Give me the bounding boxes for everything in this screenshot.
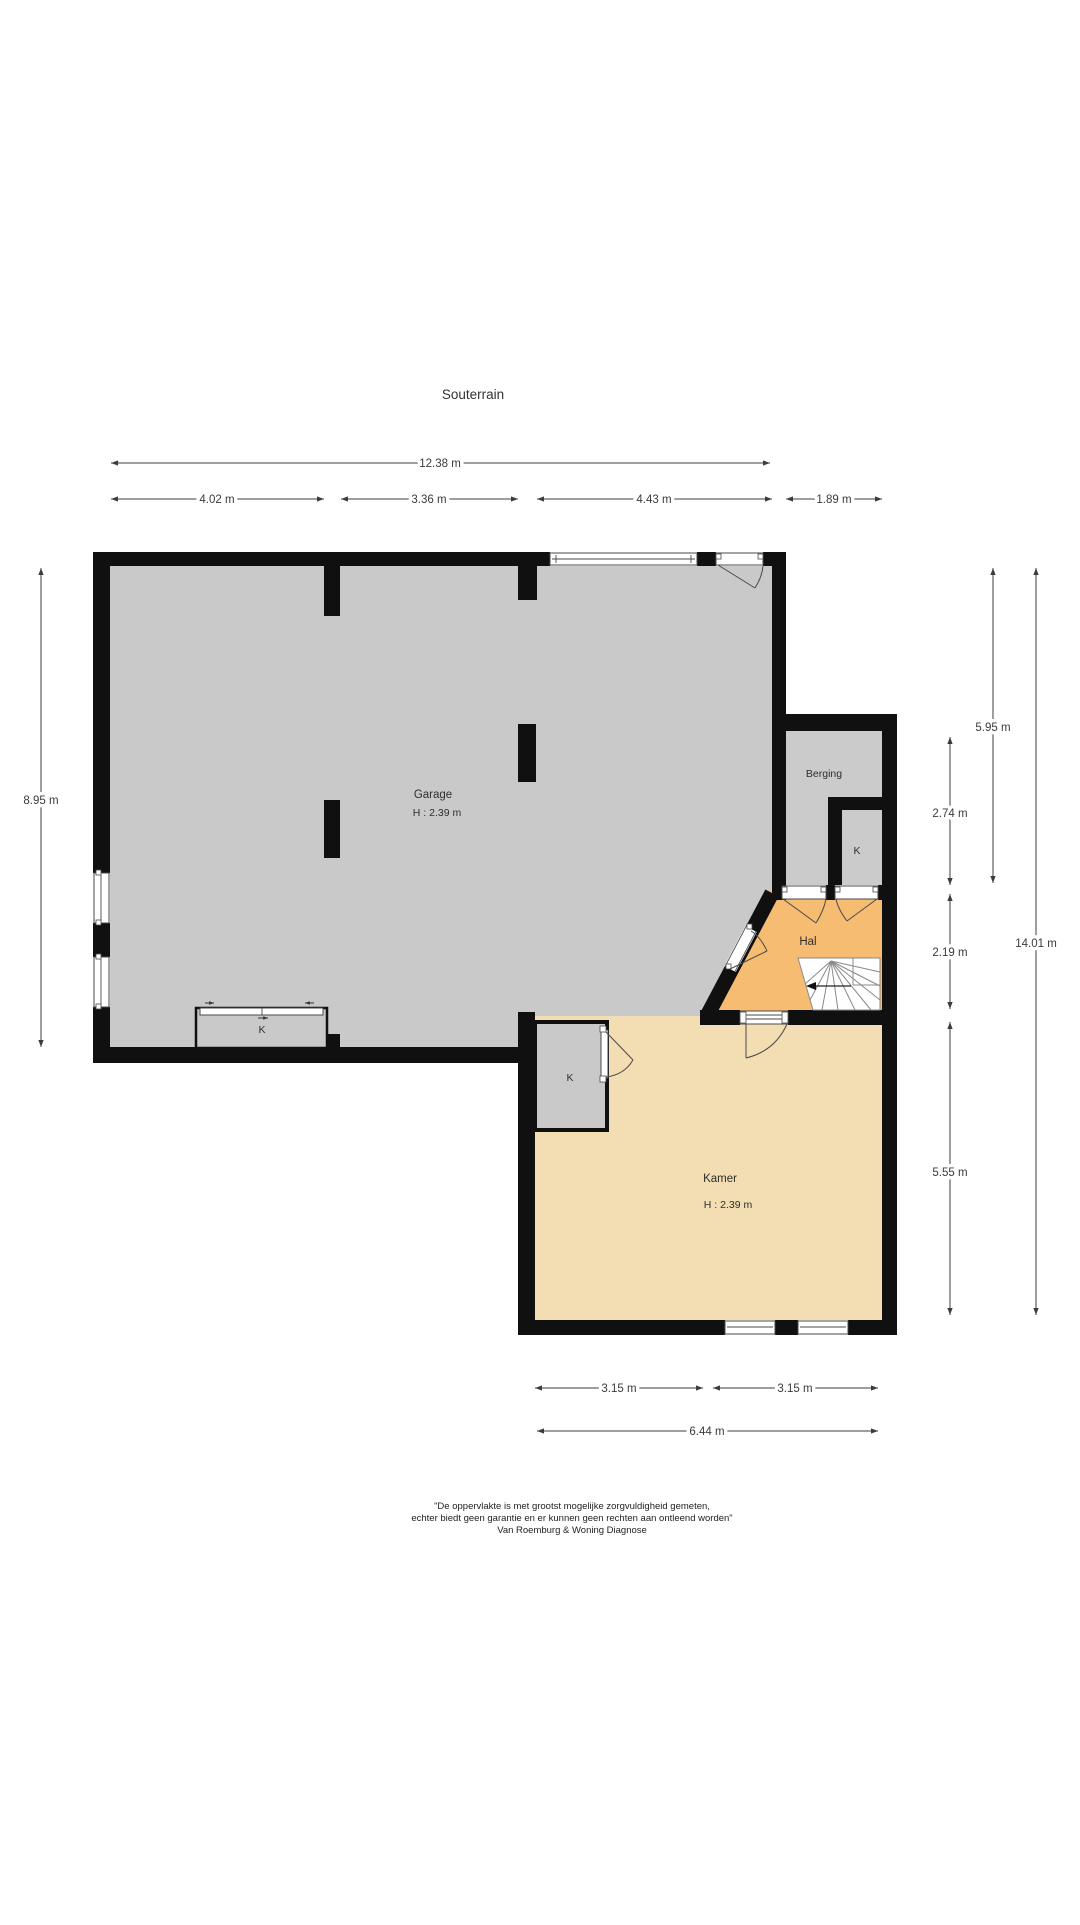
berging-closet-label: K [853, 845, 860, 857]
hinge-icon [600, 1026, 606, 1032]
stair-outline [798, 958, 880, 1010]
wall-stub-mid-1 [518, 724, 536, 782]
garage-label: Garage [414, 789, 452, 801]
wall-hal-kamer-b [788, 1010, 897, 1025]
disclaimer-line-3: Van Roemburg & Woning Diagnose [497, 1525, 647, 1536]
door-k-hal-opening [835, 886, 878, 899]
dim-right-berging-label: 2.74 m [932, 808, 967, 820]
dim-top-seg3-label: 4.43 m [636, 494, 671, 506]
dim-right-kamer-label: 5.55 m [932, 1167, 967, 1179]
hinge-icon [96, 1004, 101, 1009]
hinge-icon [873, 887, 878, 892]
dim-left-total-label: 8.95 m [23, 795, 58, 807]
hinge-icon [600, 1076, 606, 1082]
wall-stub-top-2 [518, 566, 537, 600]
hinge-icon [726, 964, 731, 969]
wall-stub-top-1 [324, 566, 340, 616]
hinge-icon [96, 954, 101, 959]
disclaimer-line-2: echter biedt geen garantie en er kunnen … [411, 1513, 732, 1524]
dimension-top-segments: 4.02 m 3.36 m 4.43 m 1.89 m [111, 494, 882, 506]
wall-left-pier [93, 923, 110, 957]
window-kamer-2 [798, 1321, 848, 1334]
disclaimer-line-1: "De oppervlakte is met grootst mogelijke… [434, 1501, 710, 1512]
wall-kamer-bottom-a [518, 1320, 725, 1335]
wall-berging-top [772, 714, 897, 731]
hinge-icon [740, 1012, 746, 1023]
door-hal-kamer-opening [740, 1011, 788, 1024]
hinge-icon [96, 870, 101, 875]
hinge-icon [782, 1012, 788, 1023]
hinge-icon [96, 920, 101, 925]
berging-label: Berging [806, 768, 842, 780]
dim-top-seg4-label: 1.89 m [816, 494, 851, 506]
wall-left-upper [93, 552, 110, 873]
wall-kamer-bottom-pier [775, 1320, 798, 1335]
wall-garage-bottom [93, 1047, 535, 1063]
staircase [798, 958, 880, 1010]
dim-right-hal-label: 2.19 m [932, 947, 967, 959]
floor-plan-svg: Souterrain [0, 0, 1080, 1920]
window-kamer-1 [725, 1321, 775, 1334]
door-berging-hal-opening [782, 886, 826, 899]
dimension-bottom-group: 3.15 m 3.15 m 6.44 m [535, 1383, 878, 1438]
hinge-icon [821, 887, 826, 892]
wall-hal-top-b [826, 885, 835, 900]
floorplan-page: Souterrain [0, 0, 1080, 1920]
wall-stub-mid-2 [324, 800, 340, 858]
kamer-closet-label: K [566, 1072, 573, 1084]
door-garage-entry-opening [716, 553, 763, 565]
dim-right-total-label: 14.01 m [1015, 938, 1057, 950]
wall-top-pier [697, 552, 716, 566]
hinge-icon [758, 554, 763, 559]
hinge-icon [747, 924, 752, 929]
wall-top-left [93, 552, 550, 566]
dimension-top-total: 12.38 m [111, 458, 770, 470]
hinge-icon [782, 887, 787, 892]
kamer-height-label: H : 2.39 m [704, 1199, 753, 1211]
dimension-right-group: 5.95 m 2.74 m 2.19 m 5.55 m 14.01 m [932, 568, 1056, 1315]
hinge-icon [835, 887, 840, 892]
dim-bottom-seg2-label: 3.15 m [777, 1383, 812, 1395]
dim-bottom-total-label: 6.44 m [689, 1426, 724, 1438]
kamer-kast-door-opening [601, 1030, 608, 1078]
window-left-1 [94, 873, 109, 923]
hinge-icon [716, 554, 721, 559]
page-title: Souterrain [442, 387, 504, 402]
wall-hal-top-c [878, 885, 897, 900]
garage-kast-front [200, 1008, 323, 1015]
garage-height-label: H : 2.39 m [413, 807, 462, 819]
dimension-left-total: 8.95 m [23, 568, 58, 1047]
wall-berging-k-divider-v [828, 797, 842, 885]
wall-kamer-bottom-b [848, 1320, 897, 1335]
window-left-2 [94, 957, 109, 1007]
dim-right-upper-label: 5.95 m [975, 722, 1010, 734]
dim-top-total-label: 12.38 m [419, 458, 461, 470]
dim-top-seg2-label: 3.36 m [411, 494, 446, 506]
wall-hal-kamer-a [700, 1010, 740, 1025]
dim-top-seg1-label: 4.02 m [199, 494, 234, 506]
wall-kamer-left [518, 1012, 535, 1335]
kamer-label: Kamer [703, 1173, 737, 1185]
garage-closet-label: K [258, 1024, 265, 1036]
dim-bottom-seg1-label: 3.15 m [601, 1383, 636, 1395]
disclaimer: "De oppervlakte is met grootst mogelijke… [411, 1501, 732, 1536]
hal-label: Hal [799, 936, 816, 948]
